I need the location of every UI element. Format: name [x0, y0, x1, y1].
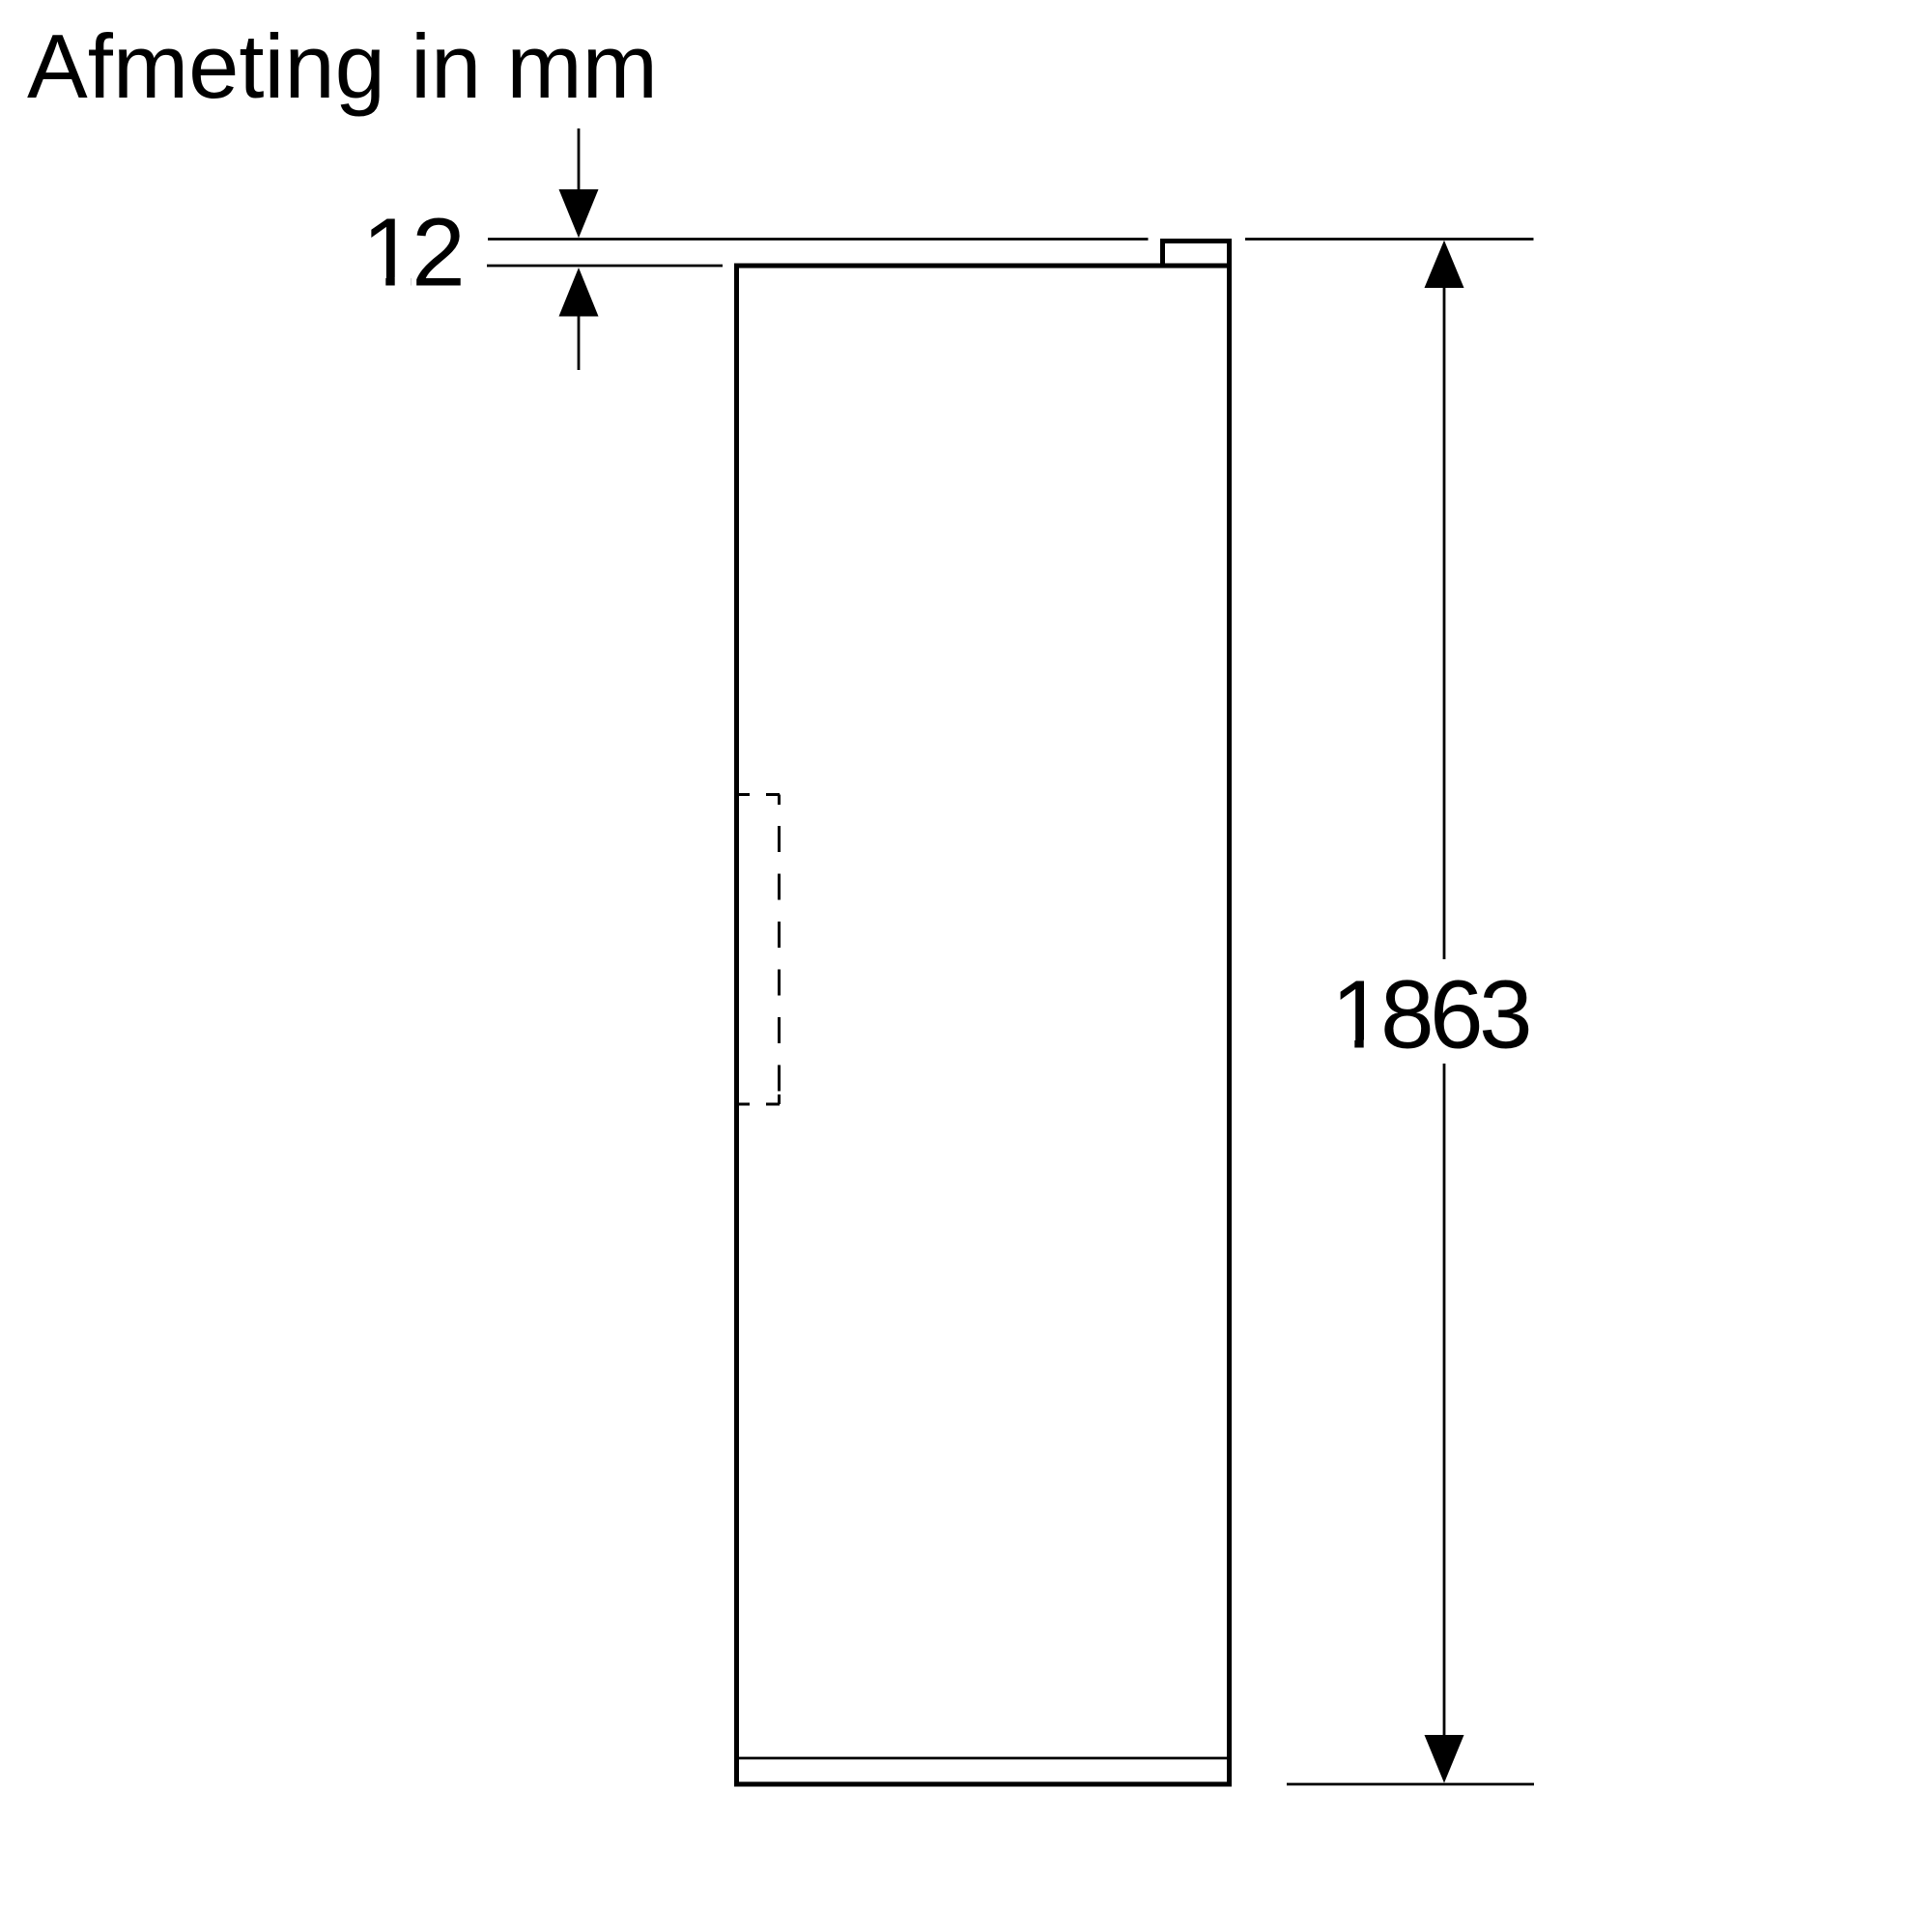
svg-text:Afmeting in mm: Afmeting in mm — [27, 15, 658, 117]
svg-text:12: 12 — [362, 199, 466, 307]
svg-text:1863: 1863 — [1331, 961, 1533, 1069]
